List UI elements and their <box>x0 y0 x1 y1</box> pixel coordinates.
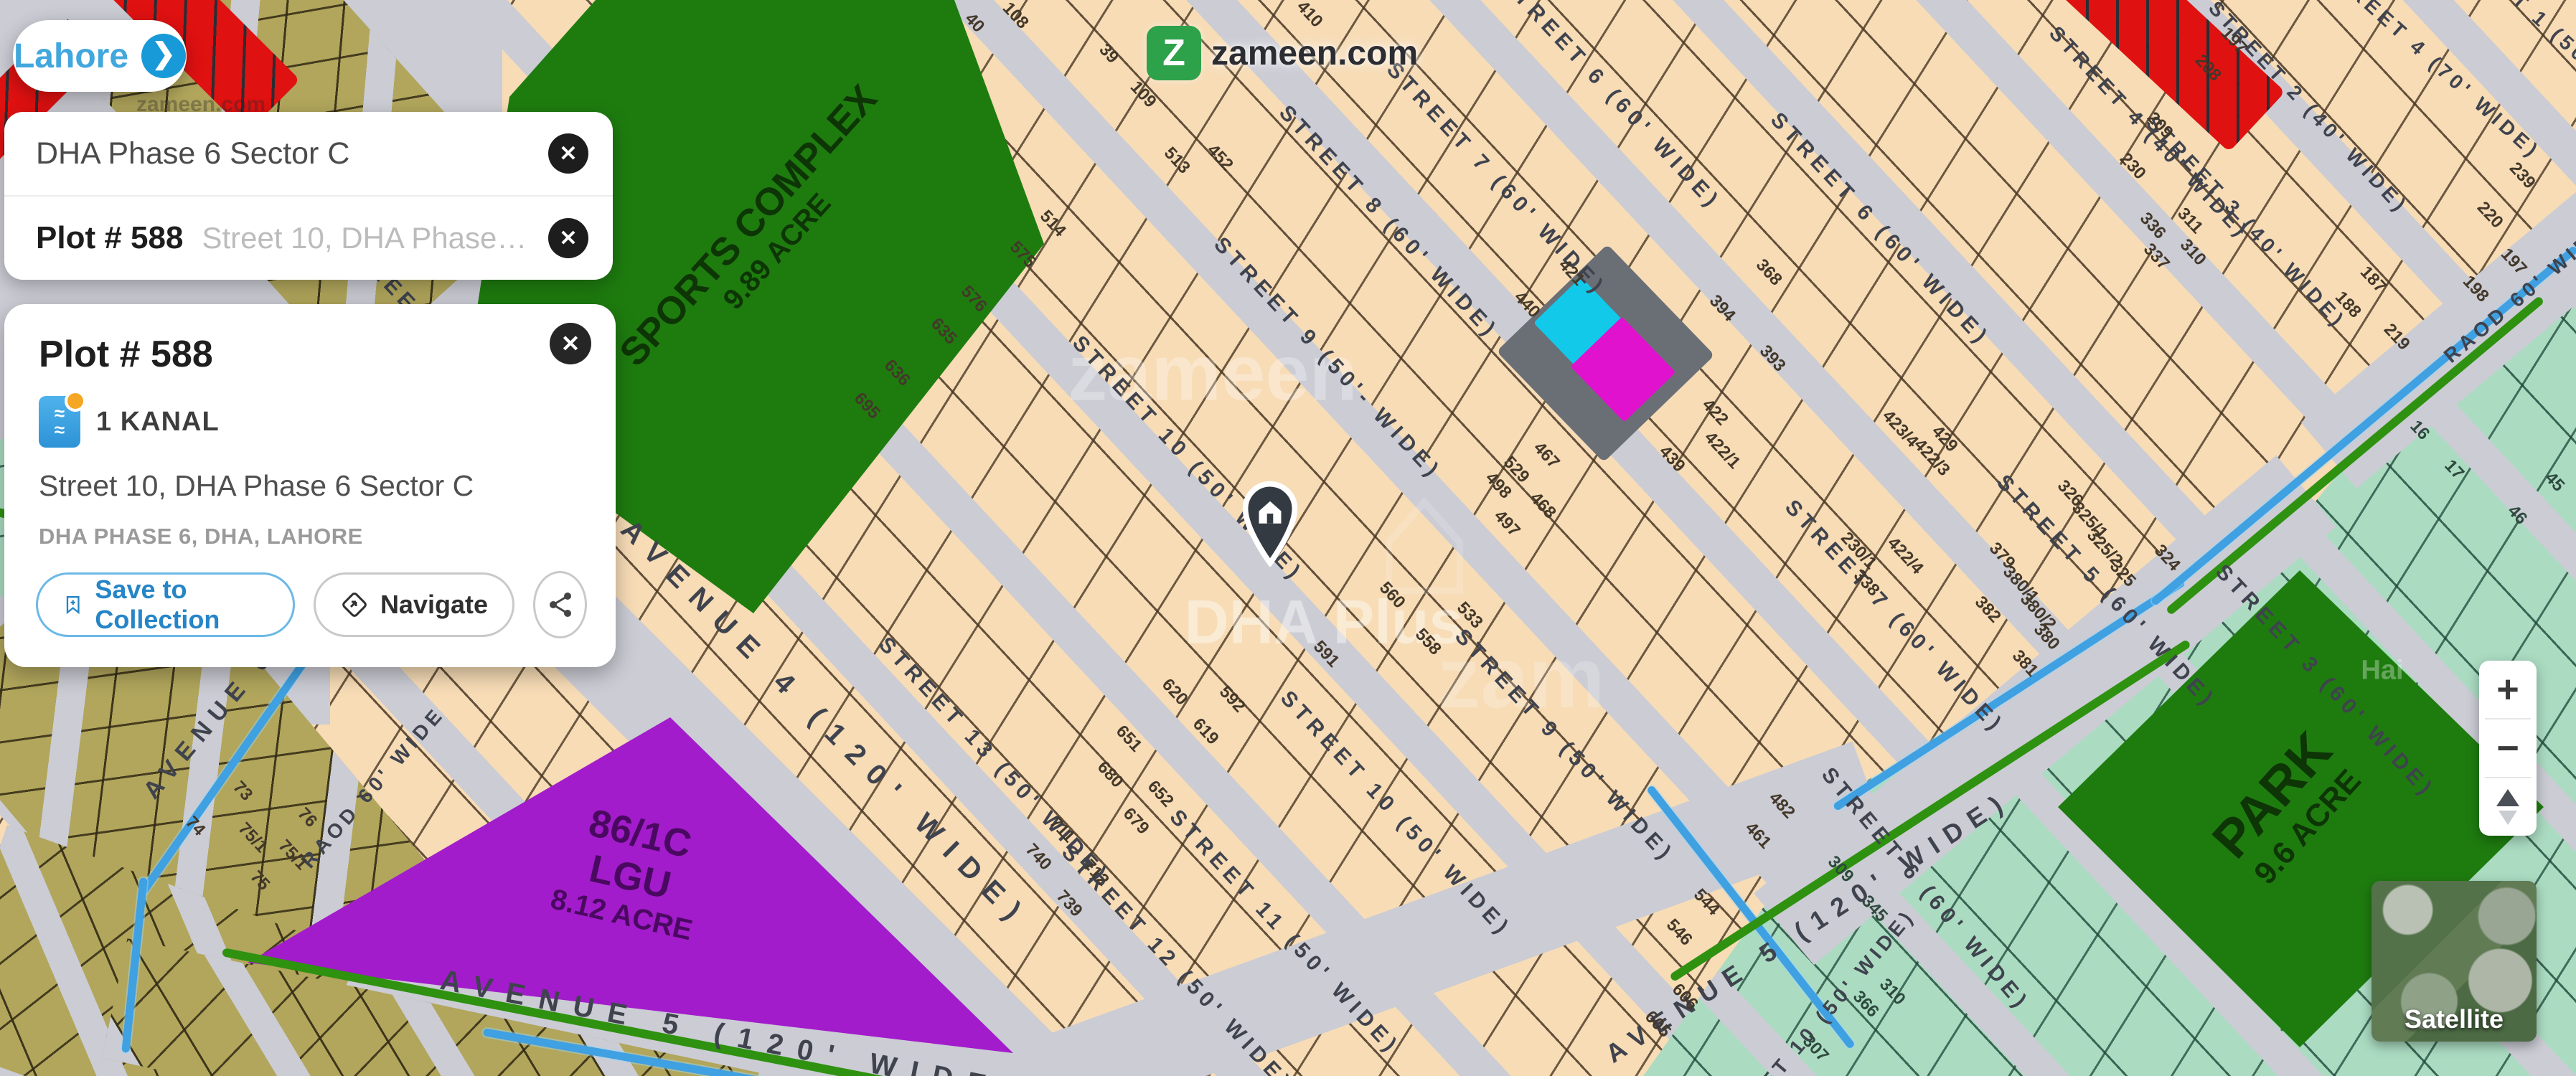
plus-icon: + <box>2496 667 2519 712</box>
search-query-text: DHA Phase 6 Sector C <box>36 136 349 171</box>
plot-info-card: ✕ Plot # 588 ≈ ≈ 1 KANAL Street 10, DHA … <box>4 304 616 667</box>
zameen-logo: Z zameen.com <box>1147 26 1418 80</box>
search-result-title: Plot # 588 <box>36 220 183 256</box>
compass-button[interactable] <box>2479 778 2537 836</box>
save-to-collection-button[interactable]: Save to Collection <box>36 572 295 637</box>
compass-up-icon <box>2496 789 2519 806</box>
city-button[interactable]: Lahore ❯ <box>13 20 187 92</box>
satellite-label: Satellite <box>2371 1004 2537 1034</box>
search-query-row[interactable]: DHA Phase 6 Sector C ✕ <box>4 112 613 195</box>
plot-address: Street 10, DHA Phase 6 Sector C <box>39 469 474 503</box>
clear-query-button[interactable]: ✕ <box>548 133 588 174</box>
plot-area-value: 1 KANAL <box>96 407 220 438</box>
plot-area-row: ≈ ≈ 1 KANAL <box>39 396 220 448</box>
plot-title: Plot # 588 <box>39 333 213 376</box>
search-result-subtitle: Street 10, DHA Phase 6 Se... <box>202 221 532 255</box>
close-icon: ✕ <box>559 226 577 251</box>
navigate-button[interactable]: Navigate <box>314 572 514 637</box>
clear-result-button[interactable]: ✕ <box>548 218 588 258</box>
plot-marker-pin[interactable] <box>1239 478 1301 567</box>
badge-dot-icon <box>65 390 86 412</box>
card-close-button[interactable]: ✕ <box>550 323 591 364</box>
close-icon: ✕ <box>559 141 577 166</box>
share-button[interactable] <box>533 571 587 638</box>
minus-icon: − <box>2496 726 2519 770</box>
map-zoom-control: + − <box>2479 661 2537 836</box>
chevron-right-icon: ❯ <box>141 34 186 78</box>
zameen-logo-text: zameen.com <box>1211 34 1418 73</box>
save-button-label: Save to Collection <box>95 575 268 635</box>
zoom-in-button[interactable]: + <box>2479 661 2537 718</box>
zameen-logo-letter: Z <box>1162 34 1185 72</box>
navigate-button-label: Navigate <box>380 590 488 620</box>
close-icon: ✕ <box>561 330 580 357</box>
navigate-diamond-icon <box>340 590 369 619</box>
zoom-out-button[interactable]: − <box>2479 719 2537 777</box>
card-actions: Save to Collection Navigate <box>36 571 587 638</box>
bookmark-plus-icon <box>62 591 83 618</box>
plot-location: DHA PHASE 6, DHA, LAHORE <box>39 524 363 549</box>
satellite-view-toggle[interactable]: Satellite <box>2371 881 2537 1042</box>
city-button-label: Lahore <box>14 37 128 76</box>
area-icon: ≈ ≈ <box>39 396 80 448</box>
share-icon <box>545 589 576 620</box>
search-panel: DHA Phase 6 Sector C ✕ Plot # 588 Street… <box>4 112 613 280</box>
map-application: zameen.comzameenDHA PluszamHai⌂ STREET 1… <box>0 0 2576 1076</box>
search-result-row[interactable]: Plot # 588 Street 10, DHA Phase 6 Se... … <box>4 197 613 280</box>
compass-down-icon <box>2499 811 2517 825</box>
zameen-logo-icon: Z <box>1147 26 1201 80</box>
